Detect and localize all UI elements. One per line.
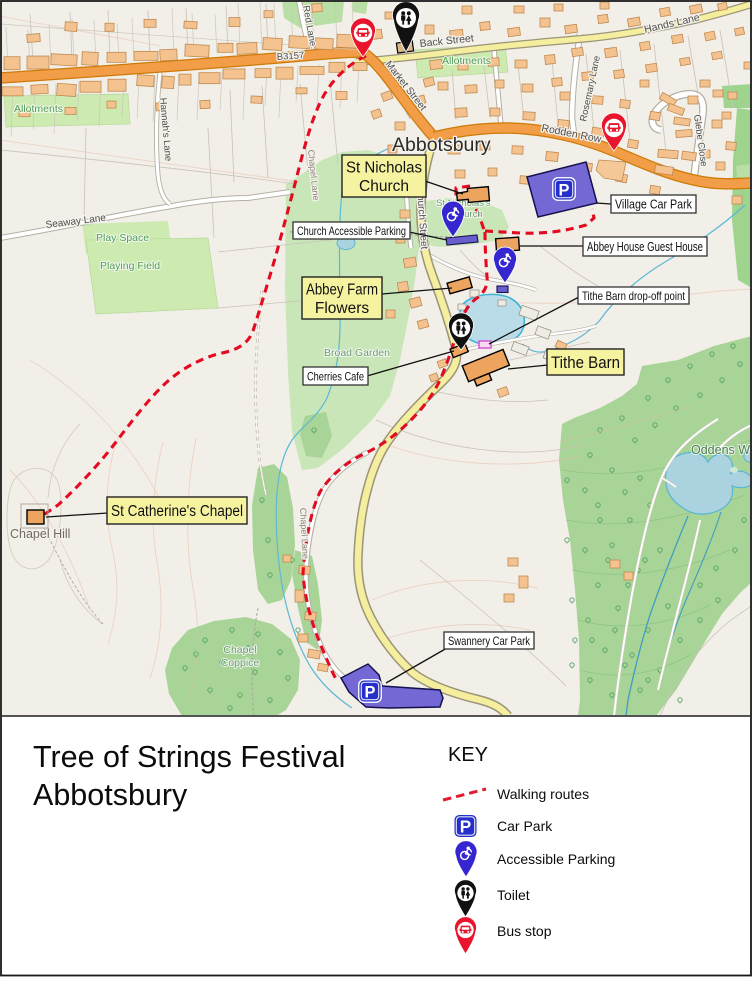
- svg-text:St Nicholas: St Nicholas: [346, 159, 422, 176]
- svg-text:Bus stop: Bus stop: [497, 923, 552, 939]
- svg-text:Flowers: Flowers: [315, 300, 370, 317]
- svg-text:Oddens Wood: Oddens Wood: [691, 443, 752, 457]
- svg-text:Allotments: Allotments: [14, 103, 63, 115]
- svg-text:Broad Garden: Broad Garden: [324, 347, 390, 359]
- svg-text:Car Park: Car Park: [497, 818, 553, 834]
- svg-text:KEY: KEY: [448, 744, 488, 766]
- svg-text:Abbotsbury: Abbotsbury: [392, 134, 491, 156]
- svg-text:Play Space: Play Space: [96, 232, 149, 244]
- svg-text:P: P: [460, 817, 471, 837]
- svg-text:P: P: [365, 683, 376, 701]
- svg-text:Village Car Park: Village Car Park: [615, 198, 693, 212]
- svg-text:Cherries Cafe: Cherries Cafe: [307, 369, 364, 383]
- svg-text:Church Accessible Parking: Church Accessible Parking: [297, 224, 406, 238]
- svg-text:P: P: [559, 181, 570, 199]
- svg-text:Abbotsbury: Abbotsbury: [33, 778, 188, 812]
- svg-text:Tithe Barn drop-off point: Tithe Barn drop-off point: [582, 289, 686, 303]
- svg-text:Tree of Strings Festival: Tree of Strings Festival: [33, 740, 345, 774]
- svg-text:Abbey House Guest House: Abbey House Guest House: [587, 240, 703, 254]
- svg-text:Coppice: Coppice: [221, 657, 260, 669]
- svg-text:Allotments: Allotments: [442, 55, 491, 67]
- svg-text:St Catherine's Chapel: St Catherine's Chapel: [111, 503, 243, 520]
- svg-text:Swannery Car Park: Swannery Car Park: [448, 634, 531, 648]
- svg-text:Tithe Barn: Tithe Barn: [551, 353, 620, 372]
- svg-text:B3157: B3157: [276, 50, 304, 63]
- svg-text:Chapel Hill: Chapel Hill: [10, 527, 70, 541]
- svg-text:Playing Field: Playing Field: [100, 260, 160, 272]
- svg-text:Walking routes: Walking routes: [497, 786, 589, 802]
- svg-text:Chapel: Chapel: [223, 644, 256, 656]
- svg-text:Church: Church: [359, 178, 409, 195]
- svg-text:Accessible Parking: Accessible Parking: [497, 851, 615, 867]
- svg-text:Abbey Farm: Abbey Farm: [306, 281, 378, 298]
- svg-text:Toilet: Toilet: [497, 887, 530, 903]
